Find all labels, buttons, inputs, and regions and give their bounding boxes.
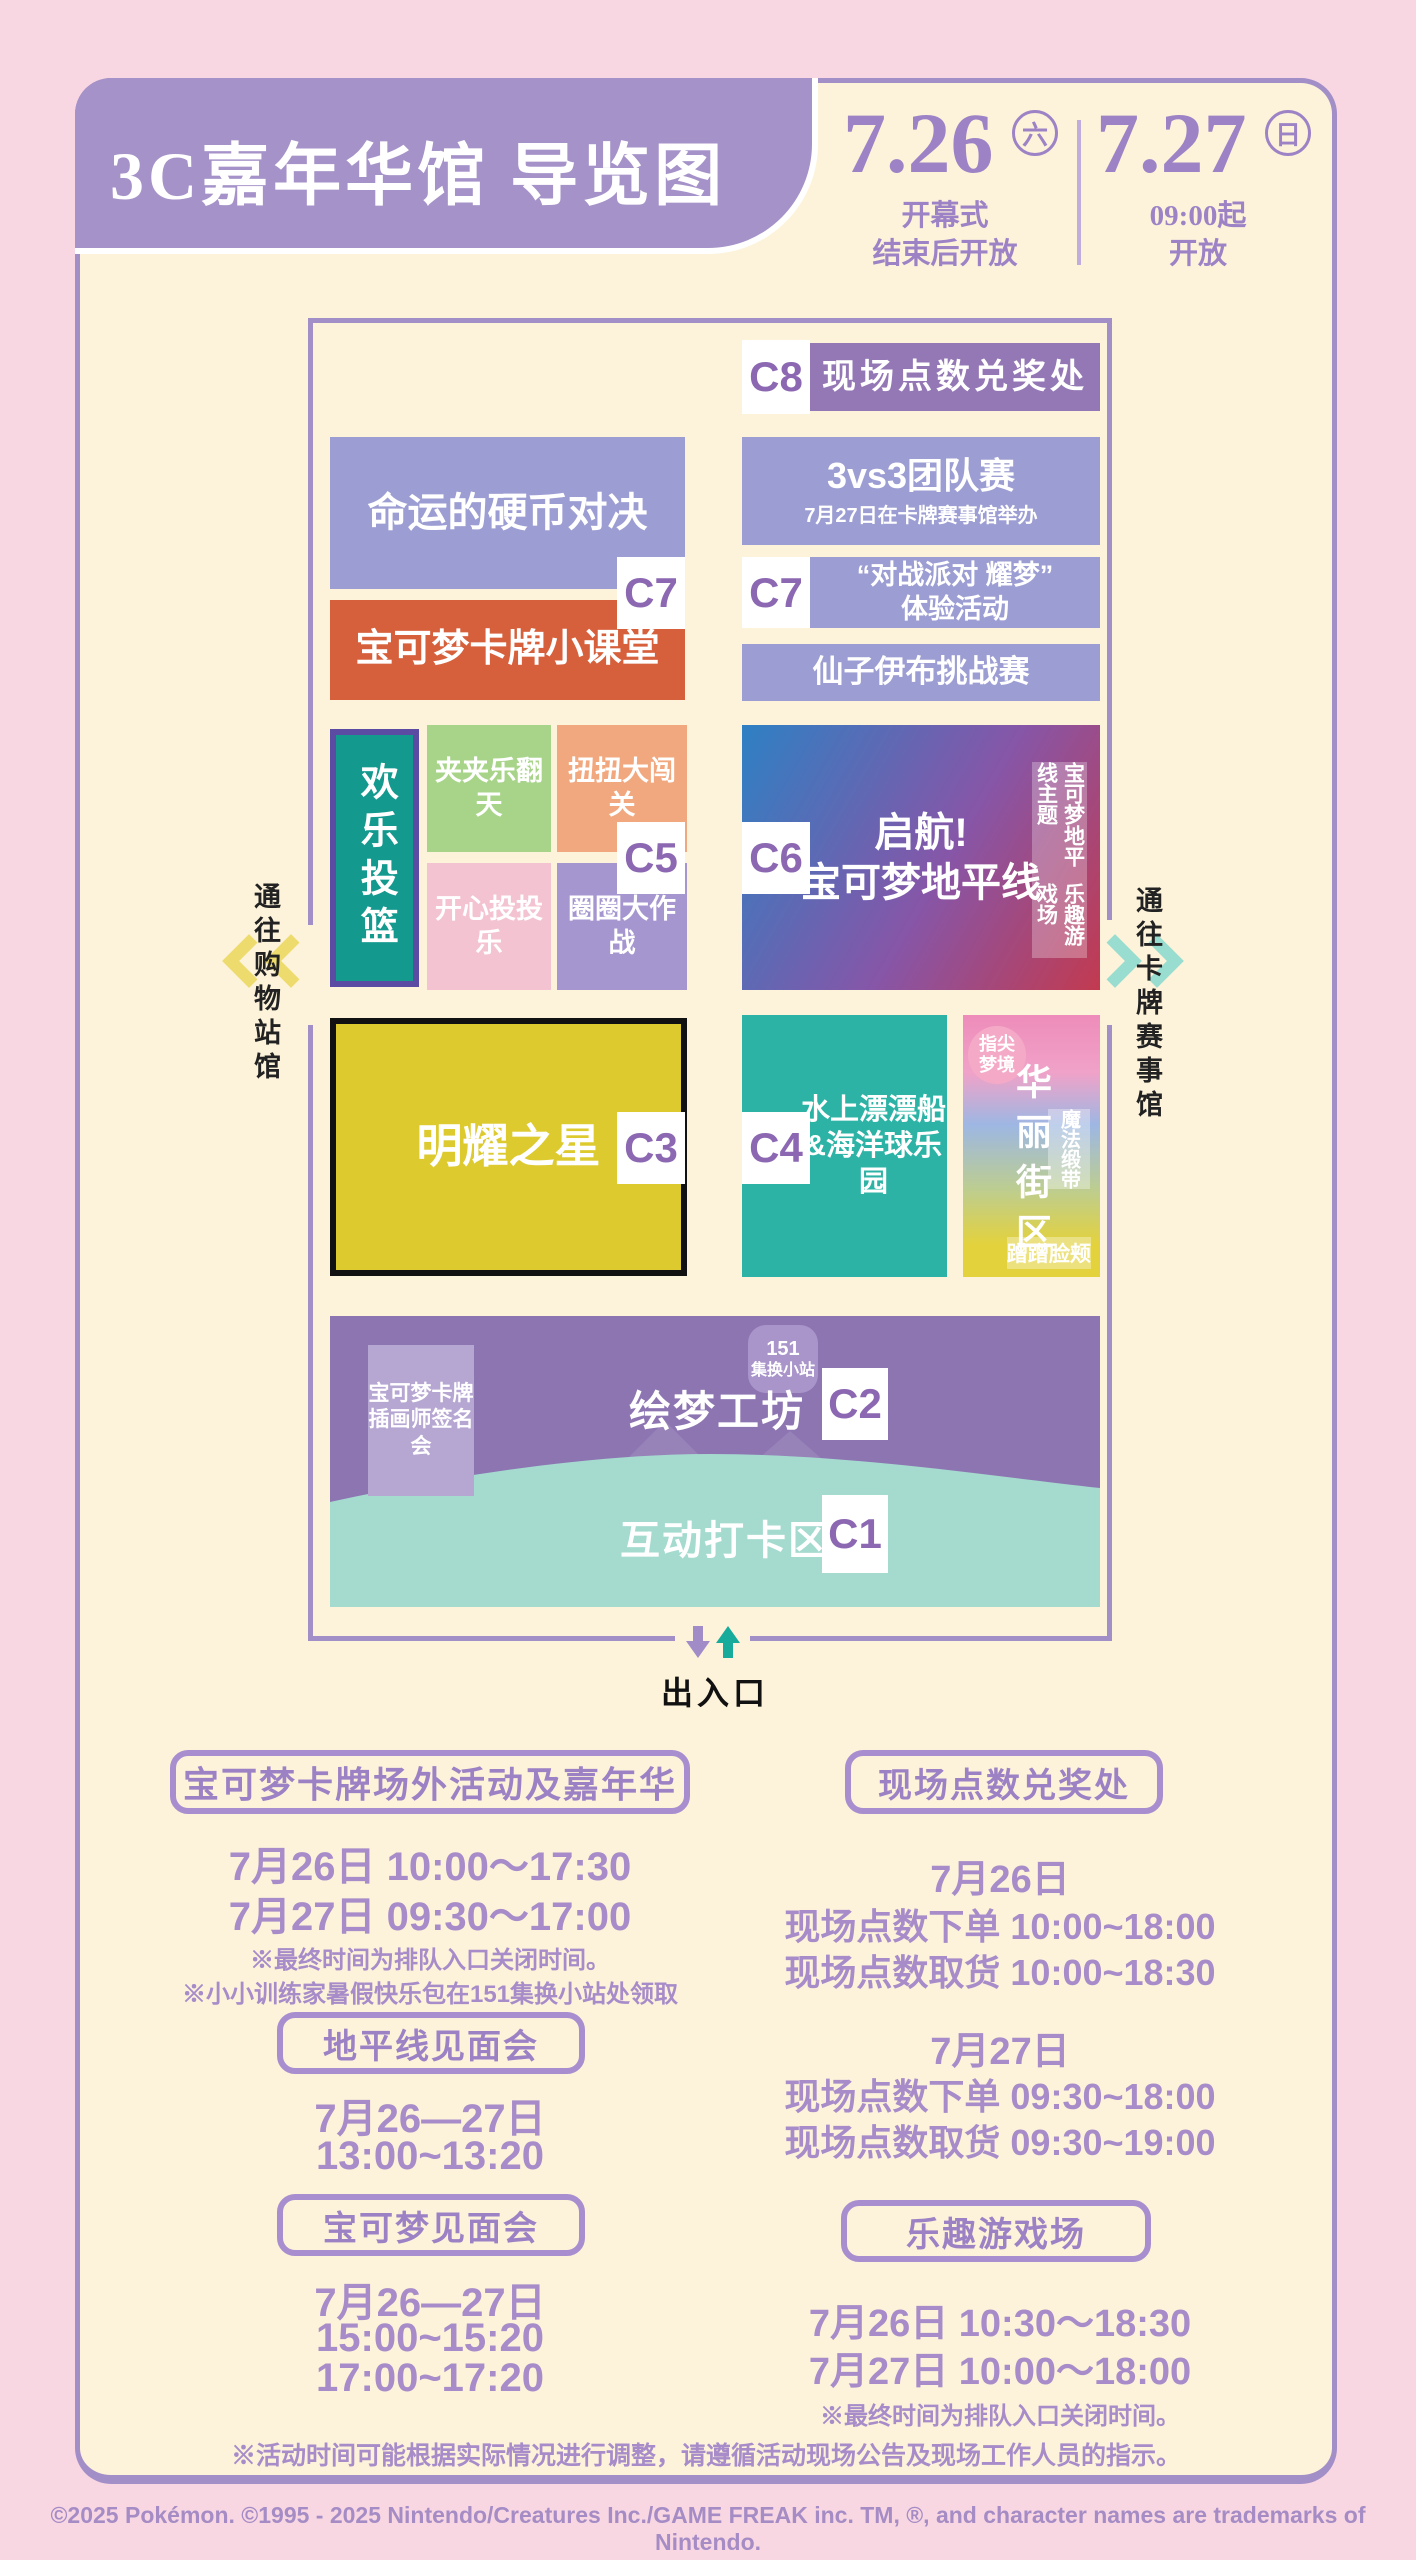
date-1-sub2: 结束后开放 — [835, 230, 1055, 272]
date-2: 7.27 — [1096, 100, 1247, 186]
map-border-bottom-left — [308, 1636, 675, 1641]
zone-3vs3-name: 3vs3团队赛 — [827, 453, 1015, 498]
section-title-carnival: 宝可梦卡牌场外活动及嘉年华 — [170, 1750, 690, 1814]
carnival-time-2: 7月27日 09:30～17:00 — [130, 1884, 730, 1942]
zone-battle-party-line2: 体验活动 — [901, 593, 1009, 627]
zone-battle-party: “对战派对 耀梦” 体验活动 — [810, 557, 1100, 628]
points-day-1: 7月26日 — [760, 1848, 1240, 1903]
enter-arrow-head — [716, 1626, 740, 1643]
badge151-line1: 151 — [766, 1337, 799, 1361]
zone-glam-district: 指尖 梦境 华丽街区 魔法缎带 蹭蹭脸颊 — [963, 1015, 1100, 1277]
map-border-right-lower — [1107, 1025, 1112, 1641]
funfair-tag-line2: 乐趣游戏场 — [1033, 883, 1087, 958]
points-day-2: 7月27日 — [760, 2020, 1240, 2075]
zone-bottom-block: 宝可梦卡牌 插画师签名会 151 集换小站 绘梦工坊 C2 互动打卡区 C1 — [330, 1316, 1100, 1607]
exit-arrow-shaft — [693, 1626, 703, 1641]
date-1-day: 六 — [1022, 115, 1048, 152]
section-title-points: 现场点数兑奖处 — [845, 1750, 1163, 1814]
section-title-pokemon-meet: 宝可梦见面会 — [277, 2194, 585, 2256]
bottom-note: ※活动时间可能根据实际情况进行调整，请遵循活动现场公告及现场工作人员的指示。 — [75, 2436, 1337, 2472]
pokemon-meet-time-1: 15:00~15:20 — [130, 2316, 730, 2361]
zone-label-c6: C6 — [742, 822, 810, 894]
section-title-funfair: 乐趣游戏场 — [841, 2200, 1151, 2262]
glam-cheek-rub: 蹭蹭脸颊 — [1007, 1237, 1091, 1269]
zone-horizons-line2: 宝可梦地平线 — [801, 858, 1041, 908]
zone-label-c7-left: C7 — [617, 557, 685, 629]
funfair-note: ※最终时间为排队入口关闭时间。 — [760, 2396, 1240, 2431]
artist-line1: 宝可梦卡牌 — [369, 1381, 474, 1407]
funfair-time-1: 7月26日 10:30～18:30 — [760, 2292, 1240, 2347]
zone-3vs3: 3vs3团队赛 7月27日在卡牌赛事馆举办 — [742, 437, 1100, 545]
zone-label-c2: C2 — [822, 1368, 888, 1440]
west-exit-label: 通往购物站馆 — [246, 882, 285, 1086]
horizon-meet-time: 13:00~13:20 — [130, 2134, 730, 2179]
zone-label-c1: C1 — [822, 1495, 888, 1573]
funfair-time-2: 7月27日 10:00～18:00 — [760, 2340, 1240, 2395]
zone-battle-party-line1: “对战派对 耀梦” — [857, 559, 1054, 593]
zone-label-c7-right: C7 — [742, 557, 810, 628]
points-day2-row1: 现场点数下单 09:30~18:00 — [760, 2068, 1240, 2120]
carnival-note-1: ※最终时间为排队入口关闭时间。 — [130, 1940, 730, 1975]
exit-arrow-icon — [686, 1626, 710, 1658]
date-2-day: 日 — [1275, 115, 1301, 152]
points-day1-row1: 现场点数下单 10:00~18:00 — [760, 1898, 1240, 1950]
zone-hoops: 欢乐投篮 — [330, 729, 419, 987]
date-1: 7.26 — [843, 100, 994, 186]
pokemon-meet-time-2: 17:00~17:20 — [130, 2356, 730, 2401]
date-divider — [1077, 120, 1081, 265]
artist-line2: 插画师签名会 — [368, 1407, 474, 1460]
date-2-sub1: 09:00起 — [1088, 192, 1308, 234]
enter-arrow-icon — [716, 1626, 740, 1658]
glam-magic-ribbon: 魔法缎带 — [1048, 1109, 1090, 1189]
water-line2: &海洋球乐园 — [800, 1128, 947, 1201]
zone-water-park-text: 水上漂漂船 &海洋球乐园 — [800, 1015, 947, 1277]
zone-label-c4: C4 — [742, 1112, 810, 1184]
zone-sylveon-challenge: 仙子伊布挑战赛 — [742, 644, 1100, 701]
copyright-footer: ©2025 Pokémon. ©1995 - 2025 Nintendo/Cre… — [0, 2502, 1416, 2556]
map-border-left-upper — [308, 318, 313, 925]
zone-photo-area: 互动打卡区 — [595, 1508, 855, 1566]
zone-label-c8: C8 — [742, 340, 810, 414]
zone-artist-signing: 宝可梦卡牌 插画师签名会 — [368, 1345, 474, 1496]
date-1-sub1: 开幕式 — [835, 192, 1055, 234]
page-title: 3C嘉年华馆 导览图 — [110, 120, 810, 219]
zone-label-c5: C5 — [617, 822, 685, 894]
entrance-label: 出入口 — [610, 1668, 820, 1714]
fingertip-line1: 指尖 — [979, 1034, 1015, 1055]
exit-arrow-head — [686, 1641, 710, 1658]
water-line1: 水上漂漂船 — [801, 1092, 946, 1128]
date-2-day-badge: 日 — [1265, 110, 1311, 156]
map-border-top — [308, 318, 1112, 323]
map-border-left-lower — [308, 1025, 313, 1641]
zone-toss-game: 开心投投乐 — [427, 863, 551, 990]
date-2-sub2: 开放 — [1088, 230, 1308, 272]
enter-arrow-shaft — [723, 1643, 733, 1658]
zone-claw-game: 夹夹乐翻天 — [427, 725, 551, 852]
points-day1-row2: 现场点数取货 10:00~18:30 — [760, 1944, 1240, 1996]
map-border-bottom-right — [750, 1636, 1112, 1641]
poster: 3C嘉年华馆 导览图 7.26 六 开幕式 结束后开放 7.27 日 09:00… — [0, 0, 1416, 2560]
zone-label-c3: C3 — [617, 1112, 685, 1184]
zone-points-redemption: 现场点数兑奖处 — [810, 343, 1100, 411]
zone-3vs3-sub: 7月27日在卡牌赛事馆举办 — [804, 504, 1037, 529]
zone-dream-workshop: 绘梦工坊 — [587, 1378, 847, 1439]
map-border-right-upper — [1107, 318, 1112, 920]
section-title-horizon-meet: 地平线见面会 — [277, 2012, 585, 2074]
points-day2-row2: 现场点数取货 09:30~19:00 — [760, 2114, 1240, 2166]
carnival-note-2: ※小小训练家暑假快乐包在151集换小站处领取 — [110, 1974, 750, 2009]
funfair-tag-line1: 宝可梦地平线主题 — [1033, 762, 1087, 883]
zone-funfair-tag: 宝可梦地平线主题 乐趣游戏场 — [1032, 762, 1087, 958]
zone-horizons-line1: 启航! — [874, 808, 967, 858]
east-exit-label: 通往卡牌赛事馆 — [1128, 886, 1167, 1124]
date-1-day-badge: 六 — [1012, 110, 1058, 156]
